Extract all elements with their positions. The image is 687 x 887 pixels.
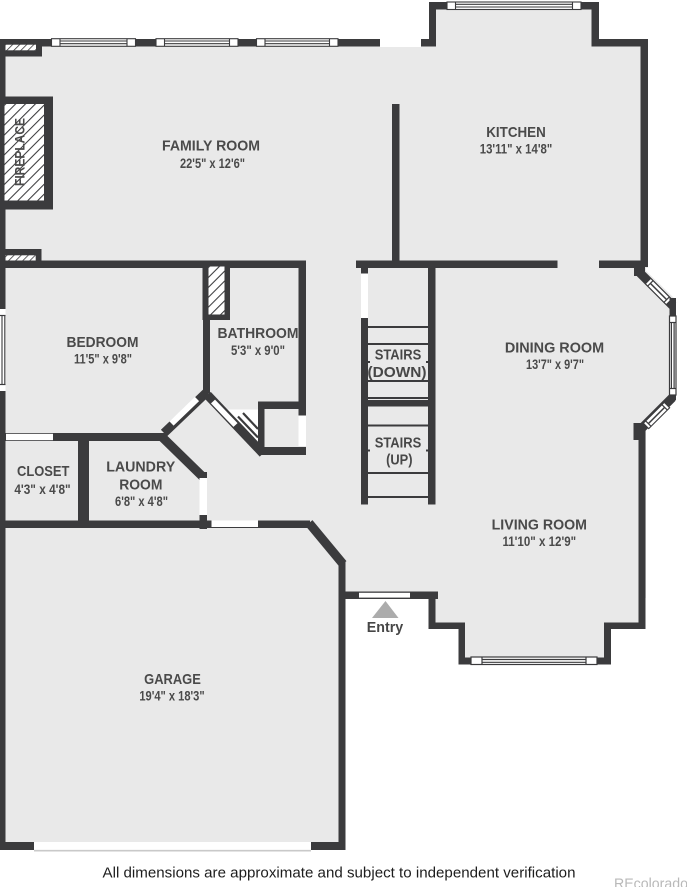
svg-text:FAMILY ROOM: FAMILY ROOM: [162, 138, 260, 155]
svg-text:Entry: Entry: [367, 619, 404, 636]
svg-text:6'8" x 4'8": 6'8" x 4'8": [115, 493, 168, 509]
svg-text:KITCHEN: KITCHEN: [486, 124, 546, 141]
svg-text:STAIRS: STAIRS: [375, 435, 422, 452]
svg-text:REcolorado: REcolorado: [614, 876, 687, 887]
svg-text:BATHROOM: BATHROOM: [218, 325, 299, 342]
svg-text:STAIRS: STAIRS: [375, 347, 422, 364]
svg-text:DINING ROOM: DINING ROOM: [505, 340, 604, 357]
svg-text:11'10" x 12'9": 11'10" x 12'9": [502, 533, 576, 549]
svg-text:LIVING ROOM: LIVING ROOM: [492, 517, 587, 534]
svg-text:13'7" x 9'7": 13'7" x 9'7": [526, 356, 584, 372]
svg-text:19'4" x 18'3": 19'4" x 18'3": [139, 688, 204, 704]
svg-text:ROOM: ROOM: [119, 477, 162, 494]
svg-text:4'3" x 4'8": 4'3" x 4'8": [14, 481, 70, 497]
svg-text:(UP): (UP): [386, 452, 412, 469]
svg-text:CLOSET: CLOSET: [17, 463, 69, 480]
svg-text:(DOWN): (DOWN): [368, 364, 427, 381]
svg-text:13'11" x 14'8": 13'11" x 14'8": [480, 141, 553, 157]
svg-text:BEDROOM: BEDROOM: [67, 334, 139, 351]
svg-text:11'5" x 9'8": 11'5" x 9'8": [74, 351, 132, 367]
svg-text:All dimensions are approximate: All dimensions are approximate and subje…: [103, 865, 576, 882]
svg-text:22'5" x 12'6": 22'5" x 12'6": [180, 155, 245, 171]
svg-text:FIREPLACE: FIREPLACE: [12, 118, 28, 186]
svg-text:5'3" x 9'0": 5'3" x 9'0": [231, 342, 285, 358]
svg-text:GARAGE: GARAGE: [144, 671, 201, 688]
svg-text:LAUNDRY: LAUNDRY: [106, 459, 175, 476]
